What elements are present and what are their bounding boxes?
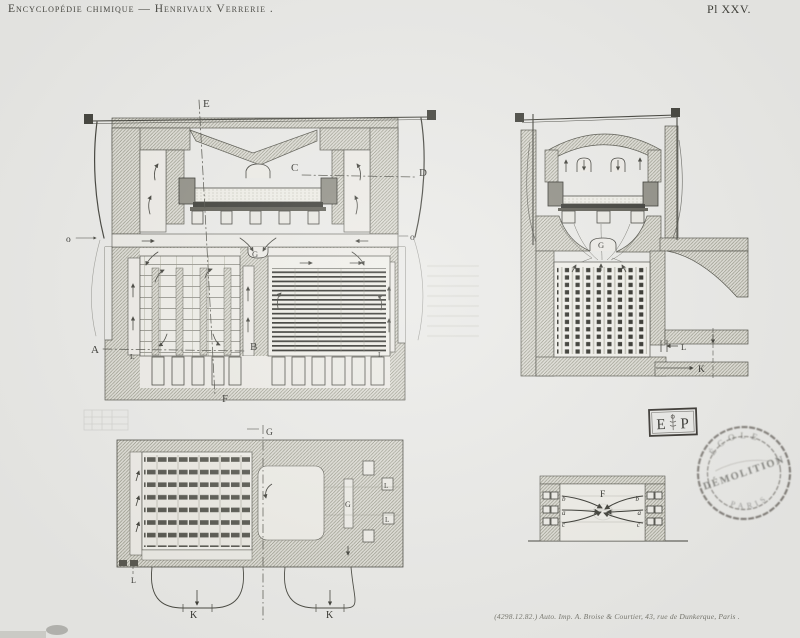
ep-stamp: E P <box>649 408 697 436</box>
ep-stamp-letter-p: P <box>680 416 689 432</box>
label-l-left: L <box>130 352 135 361</box>
figure-port-detail: F b a c b a c <box>528 476 688 541</box>
label-f: F <box>600 490 605 500</box>
flue-strip <box>130 452 142 555</box>
ep-stamp-letter-e: E <box>656 417 666 433</box>
figure-transverse-section: G L K <box>515 108 748 380</box>
melting-tank <box>548 182 658 223</box>
svg-text:PARIS: PARIS <box>728 492 771 513</box>
label-g: G <box>598 240 604 250</box>
label-g: G <box>252 249 258 259</box>
checkerwork-columns <box>557 267 647 354</box>
figure-longitudinal-section: E F C D A B G o o L L <box>66 98 478 405</box>
label-l-2: L <box>385 516 389 524</box>
bottom-flue-strip <box>142 550 252 560</box>
label-l-exit: L <box>131 576 136 585</box>
label-b: B <box>250 341 257 353</box>
label-o-right: o <box>410 233 415 243</box>
label-a: A <box>91 344 99 356</box>
svg-text:ÉCOLE: ÉCOLE <box>705 427 766 458</box>
molten-glass <box>195 188 321 202</box>
stamp-arc-top-text: ÉCOLE <box>705 427 766 458</box>
scanned-plate-page: Encyclopédie chimique — Henrivaux Verrer… <box>0 0 800 638</box>
scan-smudge <box>46 625 68 635</box>
label-f: F <box>222 393 228 405</box>
ghost-grid <box>84 410 128 430</box>
label-k-left: K <box>190 610 198 621</box>
label-l-right: L <box>378 350 383 359</box>
label-a-left: a <box>562 509 566 517</box>
figure-plan-view: G G L L L K K <box>117 425 403 621</box>
label-b-right: b <box>636 495 640 503</box>
checkerwork <box>272 268 386 352</box>
edge-step-right <box>398 247 405 343</box>
label-k: K <box>698 365 705 375</box>
ep-stamp-emblem-icon <box>670 414 677 430</box>
label-g-slot: G <box>345 500 351 509</box>
label-o-left: o <box>66 235 71 245</box>
stamp-overprint-text: DÉMOLITION <box>702 453 787 492</box>
print-ghost-lines <box>428 266 478 336</box>
printer-imprint: (4298.12.82.) Auto. Imp. A. Broise & Cou… <box>452 612 782 621</box>
tank-arch-niche <box>246 164 270 178</box>
label-b-left: b <box>562 495 566 503</box>
label-l-1: L <box>384 482 388 490</box>
label-g-top: G <box>266 428 273 438</box>
stamp-arc-bottom-text: PARIS <box>728 492 771 513</box>
label-e: E <box>203 98 210 110</box>
chamber-opening-plan <box>258 466 324 540</box>
label-k-right: K <box>326 610 334 621</box>
label-l: L <box>681 342 686 352</box>
label-a-right: a <box>638 509 642 517</box>
edge-step-left <box>105 247 112 340</box>
engraving-canvas: E F C D A B G o o L L <box>0 0 800 638</box>
library-stamp: ÉCOLE PARIS DÉMOLITION <box>692 421 796 525</box>
checker-plan-pattern <box>144 455 250 547</box>
label-c: C <box>291 162 298 174</box>
scan-edge-shadow <box>0 631 46 638</box>
label-d: D <box>419 167 427 179</box>
down-flues <box>151 567 355 612</box>
